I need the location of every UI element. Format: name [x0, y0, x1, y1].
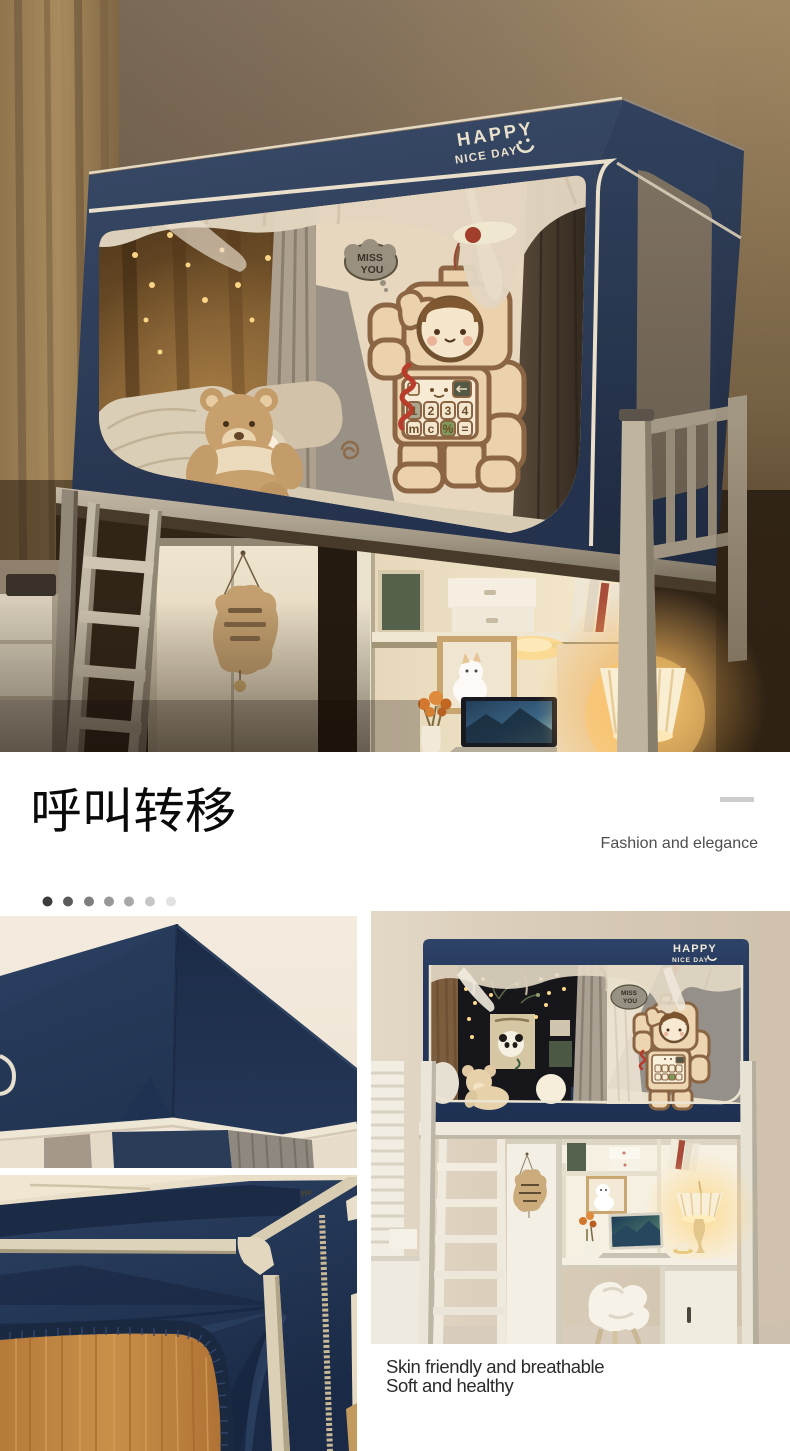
svg-text:HAPPY: HAPPY — [673, 943, 717, 955]
svg-text:YOU: YOU — [623, 998, 637, 1005]
svg-text:MISS: MISS — [621, 990, 638, 997]
svg-text:NICE DAY: NICE DAY — [672, 957, 709, 964]
